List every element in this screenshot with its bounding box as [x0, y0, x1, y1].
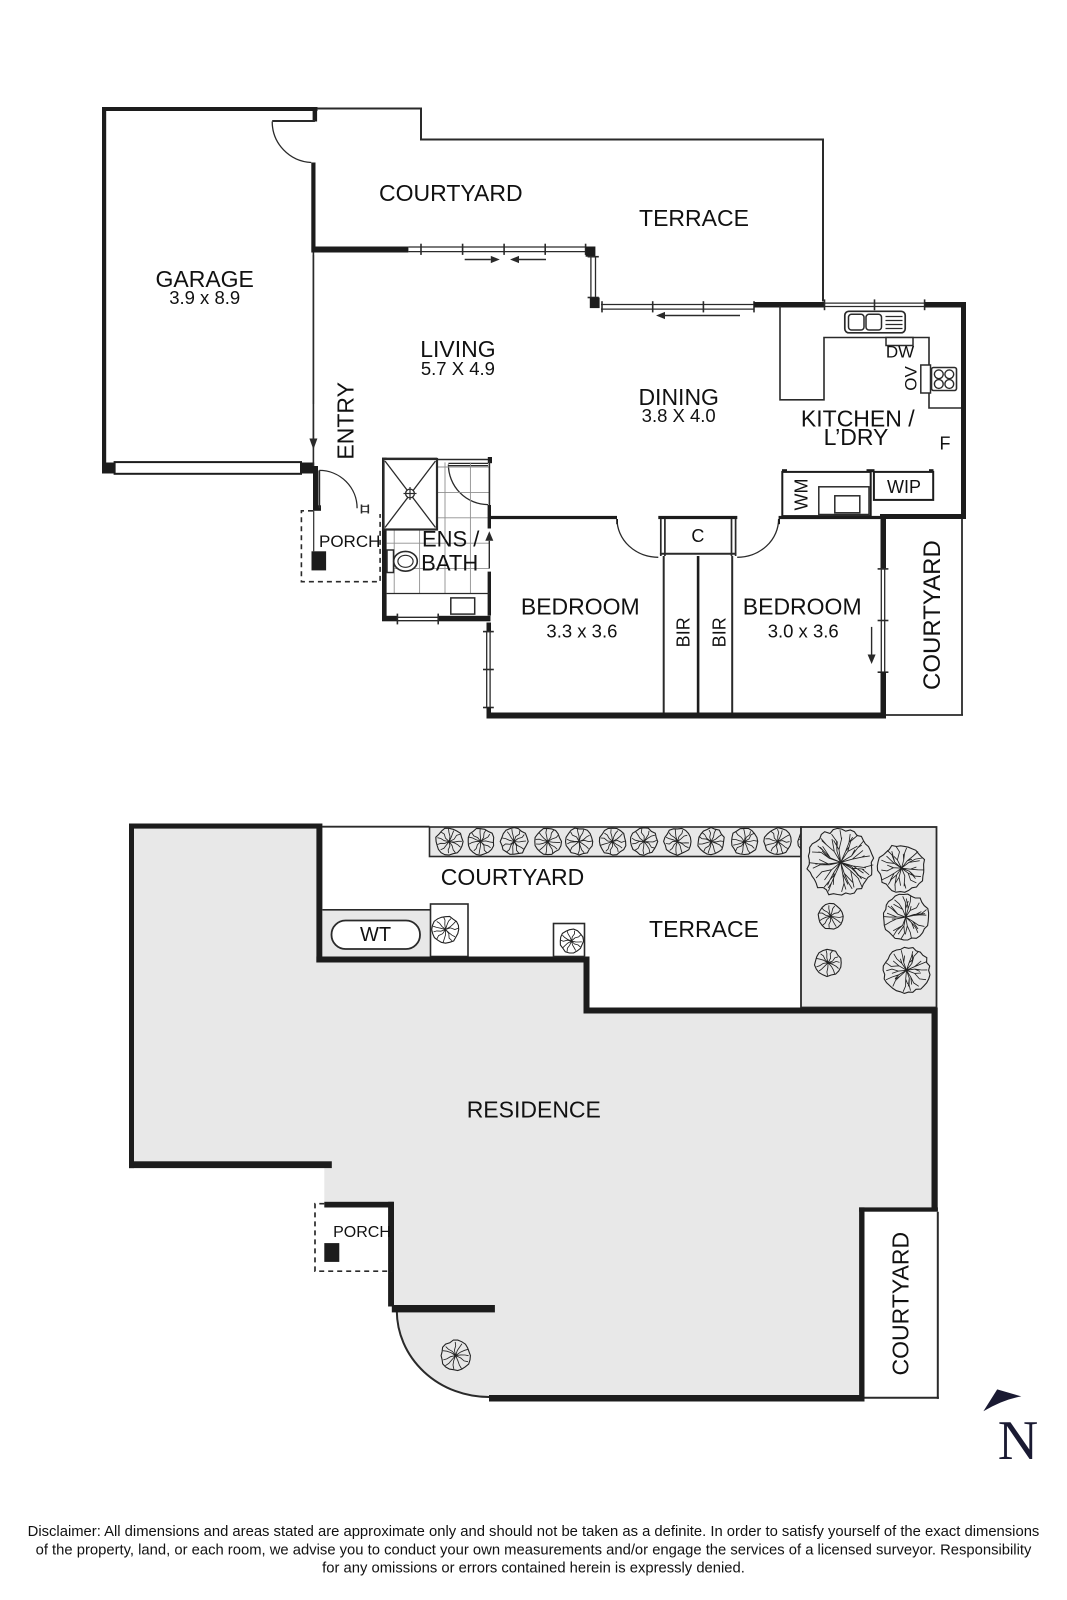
svg-text:BIR: BIR [674, 617, 694, 647]
svg-text:BEDROOM: BEDROOM [521, 594, 640, 620]
svg-text:COURTYARD: COURTYARD [379, 180, 523, 206]
svg-text:COURTYARD: COURTYARD [441, 864, 585, 890]
svg-text:WT: WT [360, 924, 391, 946]
svg-text:ENTRY: ENTRY [333, 382, 359, 460]
svg-text:3.8 X 4.0: 3.8 X 4.0 [642, 405, 716, 426]
svg-text:3.3 x 3.6: 3.3 x 3.6 [546, 621, 617, 642]
svg-text:L’DRY: L’DRY [824, 424, 889, 450]
svg-text:N: N [998, 1410, 1038, 1472]
svg-text:TERRACE: TERRACE [639, 205, 749, 231]
svg-text:BATH: BATH [421, 550, 478, 575]
svg-text:for any omissions or errors co: for any omissions or errors contained he… [322, 1561, 745, 1577]
svg-text:WM: WM [792, 479, 812, 511]
svg-text:PORCH: PORCH [319, 532, 380, 551]
svg-text:3.0 x 3.6: 3.0 x 3.6 [768, 621, 839, 642]
svg-text:COURTYARD: COURTYARD [888, 1232, 914, 1376]
svg-text:of the property, land, or each: of the property, land, or each room, we … [36, 1543, 1032, 1559]
svg-text:COURTYARD: COURTYARD [919, 540, 946, 690]
svg-text:C: C [691, 526, 704, 546]
svg-text:5.7 X 4.9: 5.7 X 4.9 [421, 358, 495, 379]
svg-text:Disclaimer: All dimensions and: Disclaimer: All dimensions and areas sta… [28, 1524, 1040, 1540]
svg-text:OV: OV [902, 366, 921, 391]
svg-text:RESIDENCE: RESIDENCE [467, 1097, 601, 1123]
svg-text:DW: DW [886, 343, 914, 362]
svg-text:ENS /: ENS / [422, 527, 480, 552]
svg-text:BEDROOM: BEDROOM [743, 594, 862, 620]
svg-text:BIR: BIR [710, 617, 730, 647]
svg-text:F: F [940, 434, 951, 454]
svg-text:3.9 x 8.9: 3.9 x 8.9 [169, 287, 240, 308]
svg-text:PORCH: PORCH [333, 1224, 391, 1241]
svg-text:TERRACE: TERRACE [649, 916, 759, 942]
svg-text:WIP: WIP [887, 477, 921, 497]
